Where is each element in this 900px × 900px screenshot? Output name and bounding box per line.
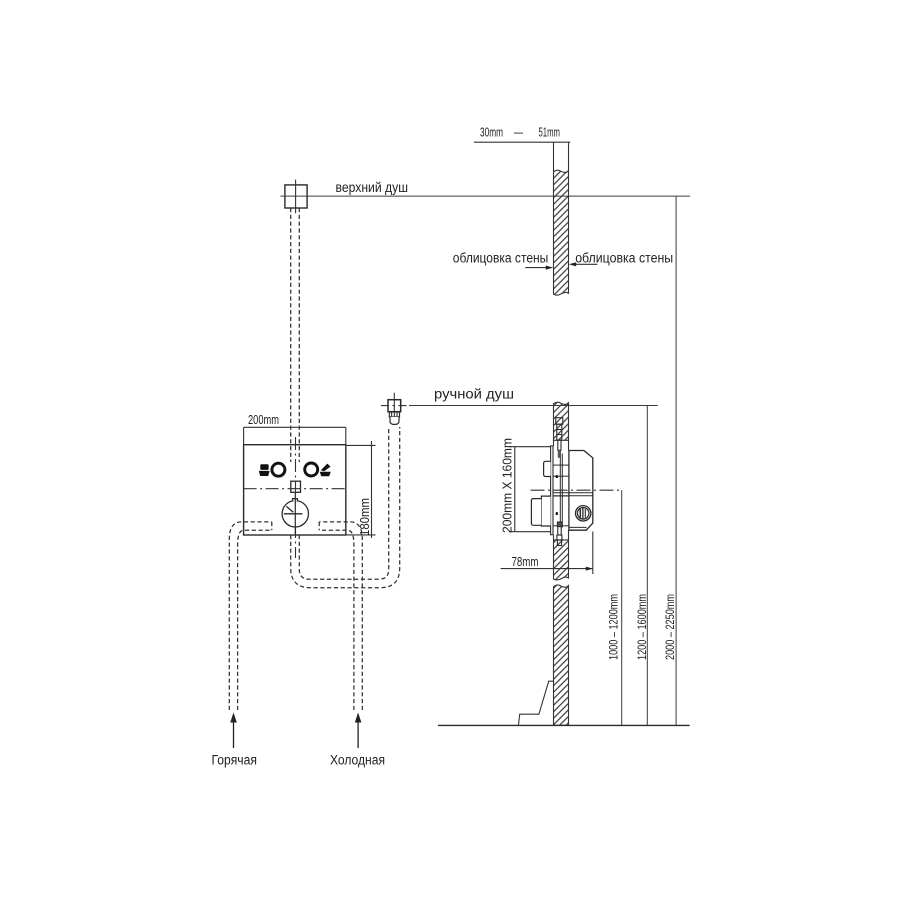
svg-text:200mm X 160mm: 200mm X 160mm xyxy=(501,438,515,533)
svg-text:51mm: 51mm xyxy=(539,126,561,140)
svg-text:180mm: 180mm xyxy=(358,498,372,536)
svg-text:Холодная: Холодная xyxy=(330,752,385,767)
svg-text:облицовка стены: облицовка стены xyxy=(453,251,549,266)
svg-text:78mm: 78mm xyxy=(512,555,539,569)
svg-text:Горячая: Горячая xyxy=(212,752,258,767)
svg-text:1000 – 1200mm: 1000 – 1200mm xyxy=(606,594,620,660)
svg-text:30mm: 30mm xyxy=(480,126,503,140)
svg-text:1200 – 1600mm: 1200 – 1600mm xyxy=(635,594,649,660)
svg-text:200mm: 200mm xyxy=(248,413,279,427)
svg-text:верхний душ: верхний душ xyxy=(336,180,409,195)
svg-text:–: – xyxy=(514,126,523,140)
svg-text:облицовка стены: облицовка стены xyxy=(575,251,673,266)
svg-text:ручной душ: ручной душ xyxy=(434,386,514,402)
svg-text:2000 – 2250mm: 2000 – 2250mm xyxy=(663,594,677,660)
